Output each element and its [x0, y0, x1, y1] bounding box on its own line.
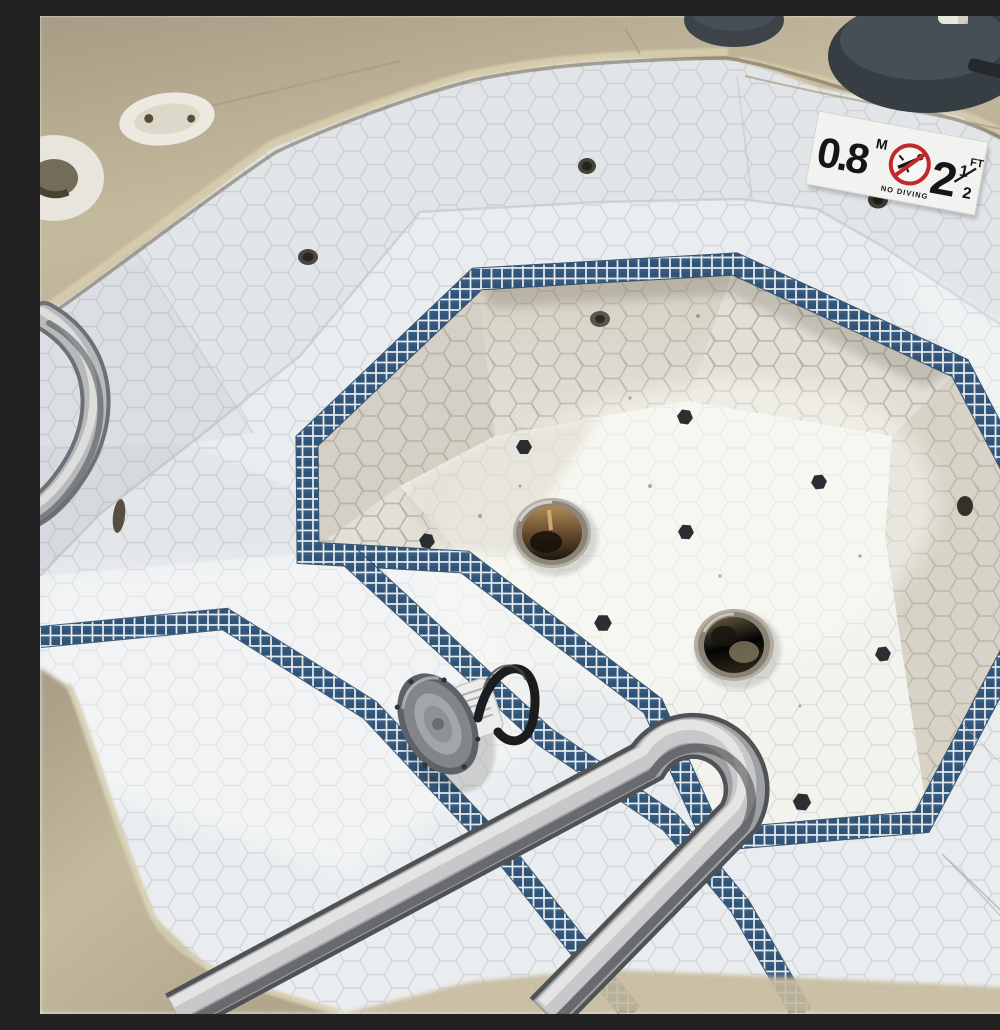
vignette [40, 16, 1000, 1014]
spa-photograph: Empty octagonal spa hot tub with white h… [40, 16, 1000, 1014]
spa-scene: 0.8 M NO DIVING 2 1 2 FT [40, 16, 1000, 1014]
